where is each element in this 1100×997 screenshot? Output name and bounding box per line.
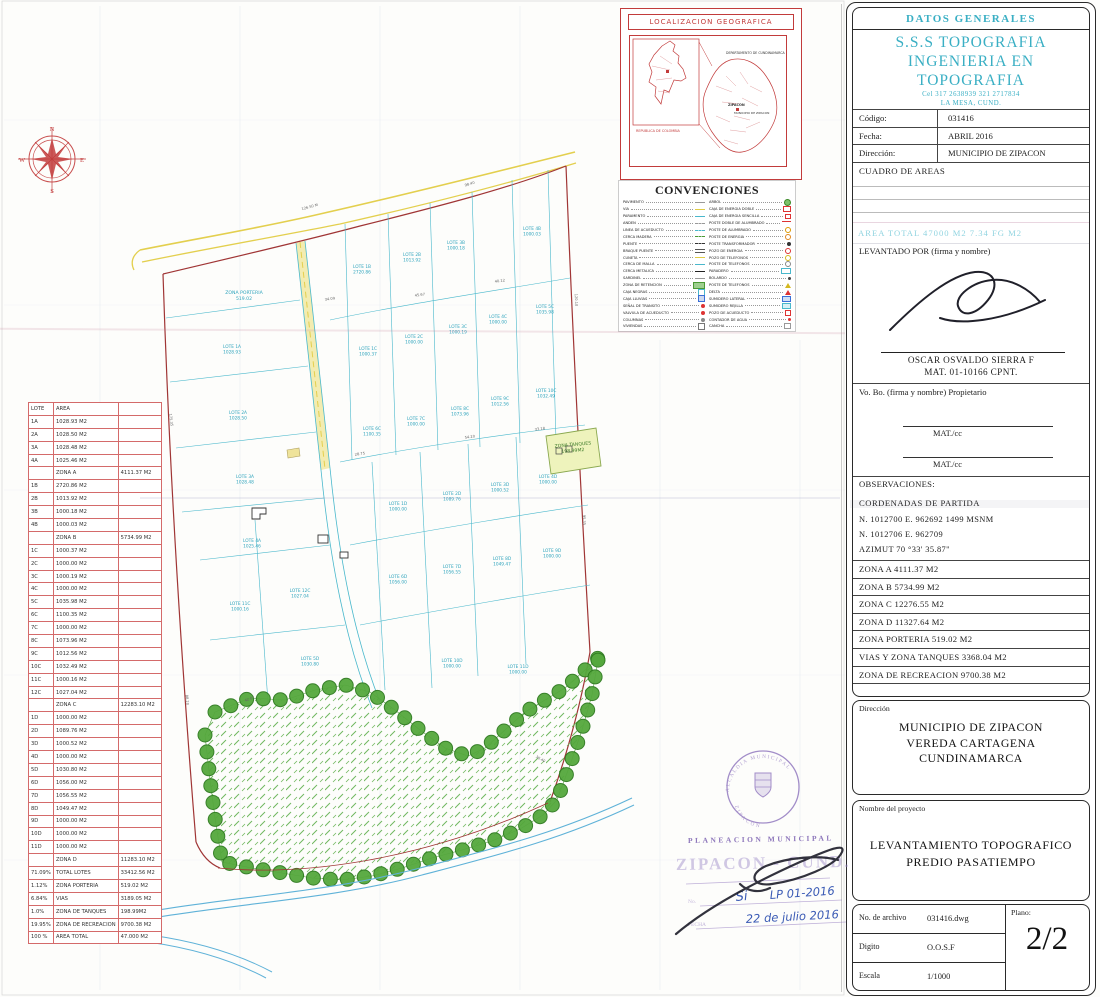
planeacion-text: PLANEACION MUNICIPAL (688, 833, 834, 845)
handwriting-lp: LP 01-2016 (769, 883, 835, 902)
svg-text:ZIPACON: ZIPACON (733, 805, 762, 830)
stamp-field-no: No. (688, 899, 697, 905)
surveyor-signature (890, 272, 1045, 330)
zipacon-text: ZIPACON - CUND. (676, 852, 851, 874)
survey-sheet: ZONA TANQUES 198.99M2 LOTE 1A1028.93LOTE… (0, 0, 1100, 997)
municipal-seal-stamp: ALCALDIA MUNICIPAL ZIPACON (725, 751, 799, 830)
stamps-overlay: ALCALDIA MUNICIPAL ZIPACON PLANEACION MU… (0, 0, 1100, 997)
seal-text-bottom: ZIPACON (733, 805, 762, 830)
